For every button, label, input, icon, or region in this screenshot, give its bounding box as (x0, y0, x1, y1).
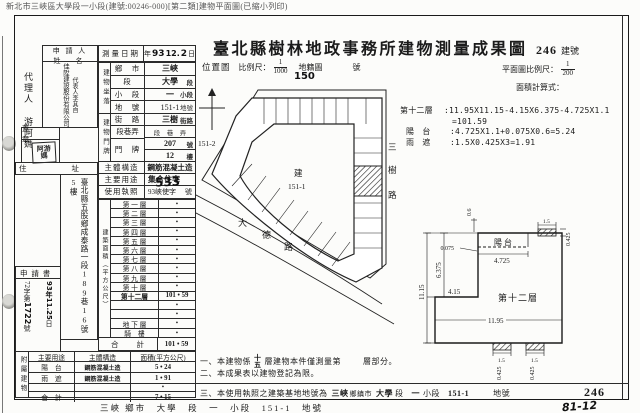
annex-header-structure: 主體構造 (75, 352, 131, 361)
parcel-label-line1: 建 (294, 168, 303, 178)
formula-expr: :4.725X1.1+0.075X0.6=5.24 (450, 127, 575, 136)
building-number-value: 246 (536, 43, 557, 57)
location-strip: 建物坐落 (99, 63, 111, 113)
seal-cell: 阿游 媽 (21, 139, 60, 163)
annex-usage: 雨 遮 (29, 373, 75, 383)
plan-scale-label: 平面圖比例尺： (502, 64, 558, 75)
door-row-value: 三樹街路 (145, 114, 195, 126)
door-strip: 建物門牌 (99, 114, 111, 161)
door-row-label: 門 牌 (111, 139, 144, 162)
door-row-suffix: 號 (187, 139, 194, 149)
formula-expr: :11.95X11.15-4.15X6.375-4.725X1.1 (444, 106, 610, 115)
floor-label: 第 七 層 (111, 255, 159, 263)
formula-row: 雨 遮:1.5X0.425X3=1.91 (400, 138, 610, 149)
plan-scale-fraction: 1 200 (561, 61, 575, 77)
floor-value: • (159, 283, 195, 291)
floor-value: • (159, 228, 195, 236)
dim-canopy-d: 0.425 (566, 233, 572, 247)
annex-strip-label: 附屬建物 (17, 356, 27, 394)
floor-area-strip: 建築面積（平方公尺） (99, 200, 111, 338)
note-3-town: 三峽 (332, 388, 349, 399)
location-row-value: 151-1地號 (145, 101, 195, 113)
formula-name: 第十二層 (400, 106, 444, 117)
annex-total-value: 7 • 15 (131, 392, 195, 402)
note-3-town-unit: 鄉鎮市 (350, 389, 373, 399)
note-1-floors-hand: 十 五 (254, 355, 262, 368)
location-row-suffix: 小段 (180, 89, 193, 99)
structure-value: 鋼筋混凝土造 (145, 161, 195, 173)
page-edge-line (2, 36, 3, 413)
svg-text:樹: 樹 (388, 165, 397, 175)
license-number-hand: 533 (155, 174, 181, 189)
dim-notch: 4.15 (448, 288, 461, 296)
annex-header-area: 面積(平方公尺) (131, 352, 195, 361)
note-3-parcel-no: 151-1 (448, 389, 469, 398)
application-date-hand: 93年11.25 (45, 281, 53, 320)
license-suffix: 號 (185, 187, 192, 197)
location-group: 建物坐落 鄉 市 三峽 段 大學段 小 段 一小段 地 號 151-1地號 (98, 62, 196, 114)
formula-result: =101.59 (444, 117, 487, 126)
floor-value: • (159, 255, 195, 263)
floor-area-strip-label: 建築面積（平方公尺） (100, 229, 109, 309)
building-number: 246建號 (536, 41, 579, 59)
dim-canopy-w: 1.5 (531, 358, 538, 364)
license-label: 使用執照 (99, 185, 145, 198)
application-number: 72字第1722號 (22, 281, 32, 351)
floor-label: 第 二 層 (111, 209, 159, 217)
floor-label: 第 八 層 (111, 264, 159, 272)
annex-total-label: 合 計 (29, 392, 75, 402)
annex-strip: 附屬建物 (16, 352, 29, 397)
footer-handwritten-number: 81-12 (562, 399, 598, 413)
floor-value: • (159, 246, 195, 254)
dim-step: 0.075 (441, 246, 455, 252)
north-arrow-icon (199, 88, 225, 130)
floor-value: • (159, 310, 195, 318)
floor-label: 第 六 層 (111, 246, 159, 254)
note-3-parcel-unit: 地號 (493, 388, 510, 399)
page-title: 臺北縣樹林地政事務所建物測量成果圖 (213, 35, 528, 59)
dim-canopy-d: 0.425 (497, 367, 503, 381)
note-1: 一、本建物係 十 五 層建物本件僅測量第 層部分。 (200, 355, 397, 368)
door-strip-label: 建物門牌 (100, 119, 110, 157)
area-formula-block: 第十二層:11.95X11.15-4.15X6.375-4.725X1.1 =1… (400, 106, 610, 148)
annex-header-row: 主要用途 主體構造 面積(平方公尺) (29, 352, 195, 362)
parcel-label-line2: 151-1 (288, 182, 306, 191)
area-formula-label: 面積計算式： (516, 82, 564, 93)
annex-area: • (131, 384, 195, 391)
door-row-value: 12樓 (145, 150, 195, 161)
location-row-value: 大學段 (145, 76, 195, 88)
location-row-label: 小 段 (111, 89, 145, 101)
notes-divider (196, 383, 629, 384)
road-right-name: 三 樹 路 (388, 142, 397, 200)
formula-name: 陽 台 (400, 127, 450, 138)
note-3-section: 大學 (376, 388, 393, 399)
location-row-label: 地 號 (111, 101, 145, 113)
note-3-section-unit: 段 (395, 388, 404, 399)
floor-value: • (159, 237, 195, 245)
location-strip-label: 建物坐落 (100, 69, 110, 107)
application-number-hand: 1722 (23, 302, 32, 324)
floor-label: 第 五 層 (111, 237, 159, 245)
door-row-label: 街 路 (111, 114, 144, 126)
floor-value: • (159, 301, 195, 309)
door-plate-group: 建物門牌 街 路 段巷弄 門 牌 三樹街路 段 巷 弄 207號 12樓 (98, 113, 196, 162)
dim-left: 11.15 (418, 284, 426, 300)
survey-month: 12. (166, 49, 180, 58)
formula-row: 第十二層:11.95X11.15-4.15X6.375-4.725X1.1 (400, 106, 610, 117)
formula-row: =101.59 (400, 117, 610, 128)
floor-label: 第 三 層 (111, 218, 159, 226)
plan-scale-denominator: 200 (563, 70, 574, 78)
location-row-suffix: 段 (187, 77, 194, 87)
survey-date-value: 年 93 12. 2 日 (144, 46, 195, 61)
applicant-representative: 代表人李其自 (70, 77, 79, 127)
annex-area: 5 • 24 (131, 362, 195, 372)
note-3-subsection-unit: 小段 (423, 388, 440, 399)
annex-usage: 陽 台 (29, 362, 75, 372)
address-value: 臺北縣五股鄉成泰路一段189巷16號5樓 (68, 178, 90, 339)
floor-label: 第 九 層 (111, 274, 159, 282)
annex-row: • (29, 384, 195, 392)
usage-label: 主要用途 (99, 173, 145, 185)
seal-stamp-line2: 媽 (41, 152, 48, 159)
door-row-value: 段 巷 弄 (145, 126, 195, 138)
floor-label: 第十二層 (111, 292, 159, 300)
floor-value: 101 • 59 (159, 292, 195, 300)
dim-canopy-w: 1.5 (498, 358, 505, 364)
floor-plan: 第十二層 陽台 11.15 6.375 4.15 11.95 4.725 0.0… (398, 168, 625, 382)
floor-label: 地 下 層 (111, 319, 159, 327)
svg-text:三: 三 (388, 142, 397, 152)
floor-label (111, 310, 159, 318)
note-1-pre: 一、本建物係 (200, 356, 251, 367)
plan-balcony-label: 陽台 (494, 237, 514, 247)
note-1-end: 層部分。 (363, 356, 397, 367)
note-3: 三、本使用執照之建築基地地號為 三峽 鄉鎮市 大學 段 一 小段 151-1 地… (200, 388, 510, 399)
floor-value: • (159, 200, 195, 208)
annex-area: 1 • 91 (131, 373, 195, 383)
seal-stamp: 阿游 媽 (31, 141, 56, 163)
formula-row: 陽 台:4.725X1.1+0.075X0.6=5.24 (400, 127, 610, 138)
note-2: 二、本成果表以建物登記為限。 (200, 368, 319, 379)
formula-expr: :1.5X0.425X3=1.91 (450, 138, 535, 147)
annex-header-usage: 主要用途 (29, 352, 75, 361)
floor-label: 第 十 層 (111, 283, 159, 291)
footer-line: 三峽 鄉市 大學 段 一 小段 151-1 地號 (100, 402, 323, 413)
application-cell: 72字第1722號 93年11.25日 (15, 278, 61, 352)
dim-balcony: 4.725 (494, 257, 510, 265)
floor-value: • (159, 274, 195, 282)
applicant-header-cell: 申 請 人 姓 名 (42, 45, 98, 62)
survey-t2: 日 (188, 49, 195, 59)
note-3-subsection: 一 (412, 388, 421, 399)
survey-date-label: 測量日期 (99, 46, 144, 61)
annex-structure: 鋼筋混凝土造 (75, 362, 131, 372)
scanned-survey-document: 新北市三峽區大學段一小段(建號:00246-000)[第二類]建物平面圖(已縮小… (0, 0, 640, 413)
location-row-value: 一小段 (145, 89, 195, 101)
door-row-value: 207號 (145, 138, 195, 150)
application-number-prefix: 72字第 (23, 281, 31, 302)
floor-total-row: 合 計 101 • 59 (98, 337, 196, 351)
survey-year: 93 (152, 49, 165, 59)
applicant-name-cell: 佳陞建設股份有限公司 代表人李其自 (42, 61, 98, 128)
structure-label: 主體構造 (99, 161, 145, 173)
bottom-building-number: 246 (584, 385, 605, 400)
application-date: 93年11.25日 (44, 281, 54, 351)
plan-header: 平面圖比例尺： 1 200 (502, 61, 578, 77)
door-row-suffix: 街路 (180, 115, 193, 125)
floor-total-label: 合 計 (99, 338, 158, 350)
svg-text:路: 路 (388, 190, 397, 200)
svg-text:德: 德 (262, 229, 271, 240)
svg-text:路: 路 (284, 241, 293, 252)
license-row: 使用執照 93峽使字 號 (98, 185, 196, 199)
door-row-suffix: 樓 (187, 151, 194, 161)
floor-label: 第 四 層 (111, 228, 159, 236)
subject-unit-hatched (354, 166, 382, 196)
annex-total-structure (75, 392, 131, 402)
building-number-unit: 建號 (561, 46, 579, 56)
location-row-value: 三峽 (145, 63, 195, 75)
location-row-suffix: 地號 (180, 102, 193, 112)
address-cell: 臺北縣五股鄉成泰路一段189巷16號5樓 (60, 174, 98, 340)
application-date-suffix: 日 (45, 320, 53, 327)
dim-top: 0.6 (467, 209, 473, 217)
dim-canopy-d: 0.425 (530, 367, 536, 381)
survey-day: 2 (181, 49, 187, 59)
location-map: 151-2 建 151-1 三 樹 (196, 58, 398, 335)
annex-usage (29, 384, 75, 391)
application-number-suffix: 號 (23, 324, 31, 331)
svg-text:大: 大 (238, 217, 247, 228)
floor-label: 第 一 層 (111, 200, 159, 208)
dim-bottom: 11.95 (488, 317, 504, 325)
applicant-label: 申 請 人 (43, 46, 97, 56)
survey-t1: 年 (144, 49, 151, 59)
floor-value: • (159, 218, 195, 226)
door-row-label: 段巷弄 (111, 126, 144, 138)
scan-meta-line: 新北市三峽區大學段一小段(建號:00246-000)[第二類]建物平面圖(已縮小… (6, 1, 288, 12)
location-row-label: 段 (111, 76, 145, 88)
adjacent-parcel-label: 151-2 (198, 139, 216, 148)
floor-value: • (159, 209, 195, 217)
dim-canopy-w: 1.5 (543, 219, 550, 225)
annex-structure: 鋼筋混凝土造 (75, 373, 131, 383)
formula-name: 雨 遮 (400, 138, 450, 149)
annex-row: 雨 遮 鋼筋混凝土造 1 • 91 (29, 373, 195, 384)
plan-floor-label: 第十二層 (498, 292, 538, 303)
floor-value: • (159, 319, 195, 327)
annex-structure (75, 384, 131, 391)
floor-value: • (159, 264, 195, 272)
survey-date-row: 測量日期 年 93 12. 2 日 (98, 45, 196, 62)
floor-area-table: 建築面積（平方公尺） 第 一 層• 第 二 層• 第 三 層• 第 四 層• 第… (98, 199, 196, 338)
address-label: 住 址 (19, 163, 89, 174)
dim-upper: 6.375 (435, 262, 443, 278)
note-3-pre: 三、本使用執照之建築基地地號為 (200, 388, 328, 399)
annex-row: 陽 台 鋼筋混凝土造 5 • 24 (29, 362, 195, 373)
annex-total-row: 合 計 7 • 15 (29, 392, 195, 402)
floor-label (111, 301, 159, 309)
annex-table: 附屬建物 主要用途 主體構造 面積(平方公尺) 陽 台 鋼筋混凝土造 5 • 2… (15, 351, 196, 398)
location-row-label: 鄉 市 (111, 63, 145, 75)
floor-total-value: 101 • 59 (158, 338, 195, 350)
note-1-mid: 層建物本件僅測量第 (265, 356, 342, 367)
applicant-company: 佳陞建設股份有限公司 (61, 63, 70, 127)
